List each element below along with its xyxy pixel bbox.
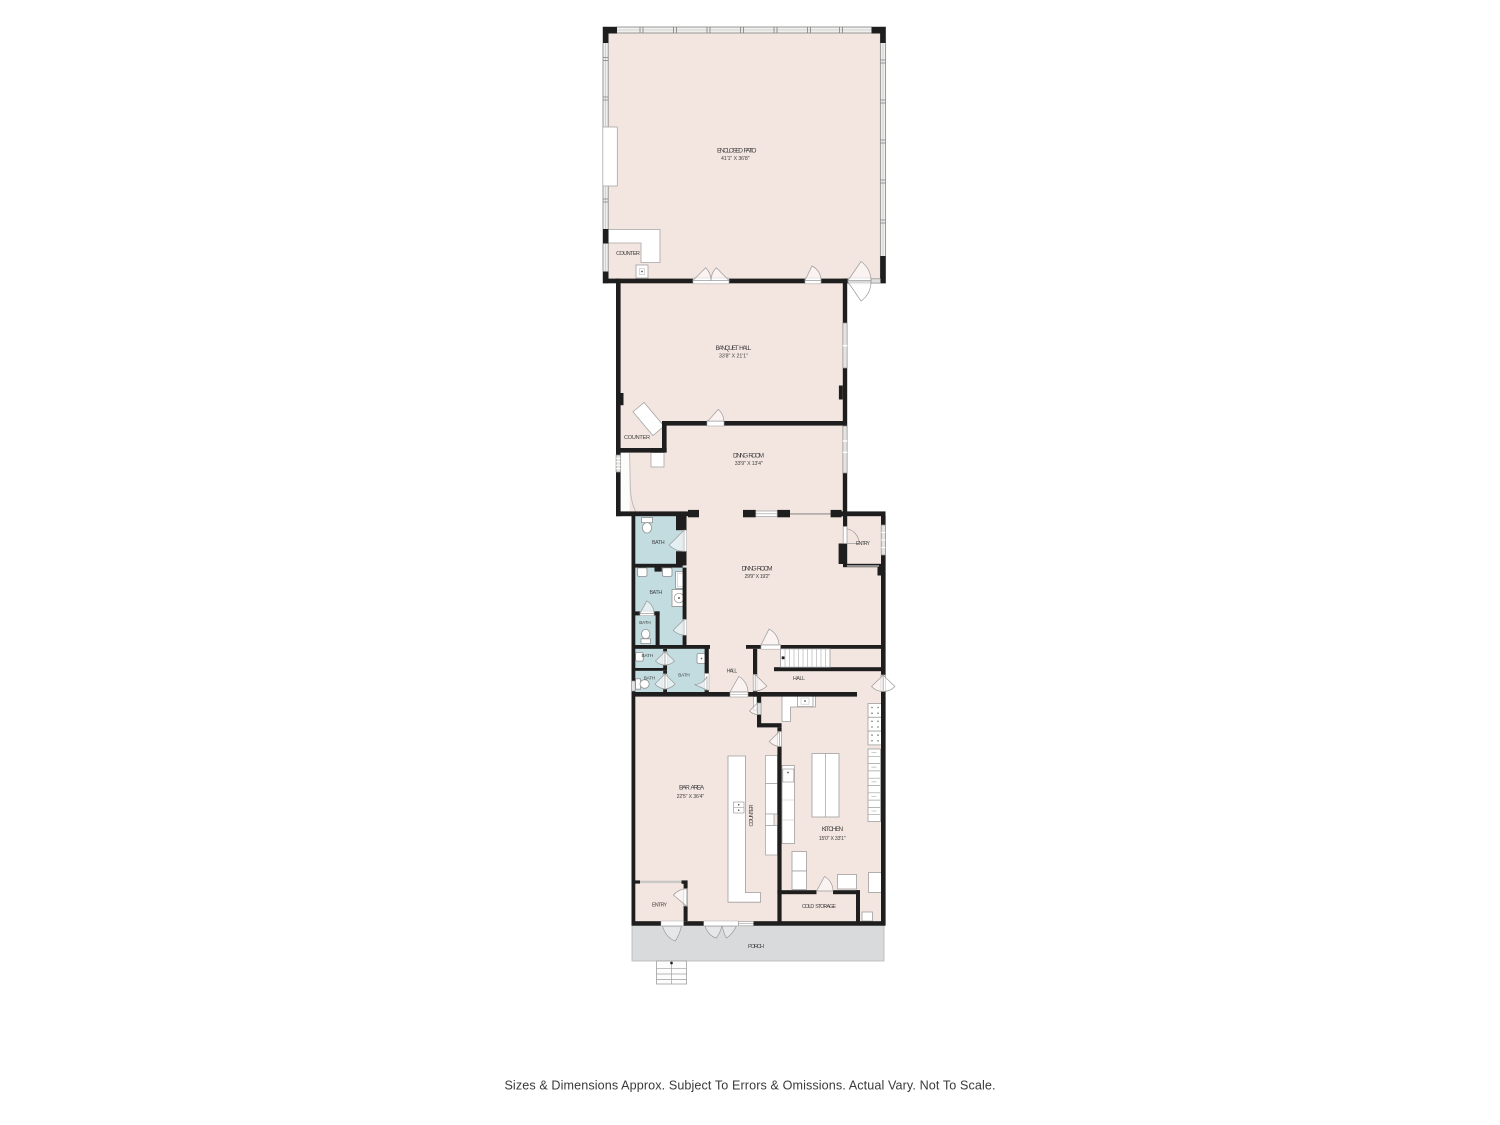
- svg-text:BATH: BATH: [642, 653, 654, 658]
- svg-text:33'9" X 13'4": 33'9" X 13'4": [735, 461, 763, 467]
- svg-text:ENTRY: ENTRY: [652, 902, 668, 908]
- svg-text:BATH: BATH: [650, 590, 663, 596]
- svg-text:Sizes & Dimensions Approx. Sub: Sizes & Dimensions Approx. Subject To Er…: [504, 1079, 995, 1093]
- svg-text:BATH: BATH: [678, 673, 690, 678]
- svg-text:BATH: BATH: [644, 675, 656, 680]
- svg-text:PORCH: PORCH: [748, 944, 764, 950]
- svg-text:HALL: HALL: [793, 676, 805, 682]
- svg-text:DINING ROOM: DINING ROOM: [733, 453, 764, 460]
- svg-text:COUNTER: COUNTER: [616, 251, 640, 257]
- svg-text:29'9" X 19'2": 29'9" X 19'2": [745, 574, 771, 580]
- svg-text:22'5" X 36'4": 22'5" X 36'4": [677, 794, 705, 800]
- svg-text:BATH: BATH: [652, 540, 665, 546]
- svg-text:HALL: HALL: [727, 668, 738, 674]
- svg-text:15'0" X 33'1": 15'0" X 33'1": [819, 836, 846, 842]
- svg-text:ENTRY: ENTRY: [856, 541, 871, 547]
- svg-text:ENCLOSED PATIO: ENCLOSED PATIO: [717, 148, 757, 155]
- svg-text:BANQUET HALL: BANQUET HALL: [716, 345, 752, 352]
- svg-text:COLD STORAGE: COLD STORAGE: [802, 904, 837, 910]
- svg-text:DINING ROOM: DINING ROOM: [742, 566, 773, 573]
- svg-text:41'1" X 36'8": 41'1" X 36'8": [721, 156, 750, 162]
- svg-text:COUNTER: COUNTER: [624, 435, 650, 441]
- svg-text:BAR AREA: BAR AREA: [679, 785, 705, 792]
- svg-text:33'8" X 21'1": 33'8" X 21'1": [719, 353, 748, 359]
- svg-text:BATH: BATH: [639, 620, 651, 625]
- svg-text:KITCHEN: KITCHEN: [822, 826, 844, 833]
- svg-text:COUNTER: COUNTER: [749, 804, 755, 826]
